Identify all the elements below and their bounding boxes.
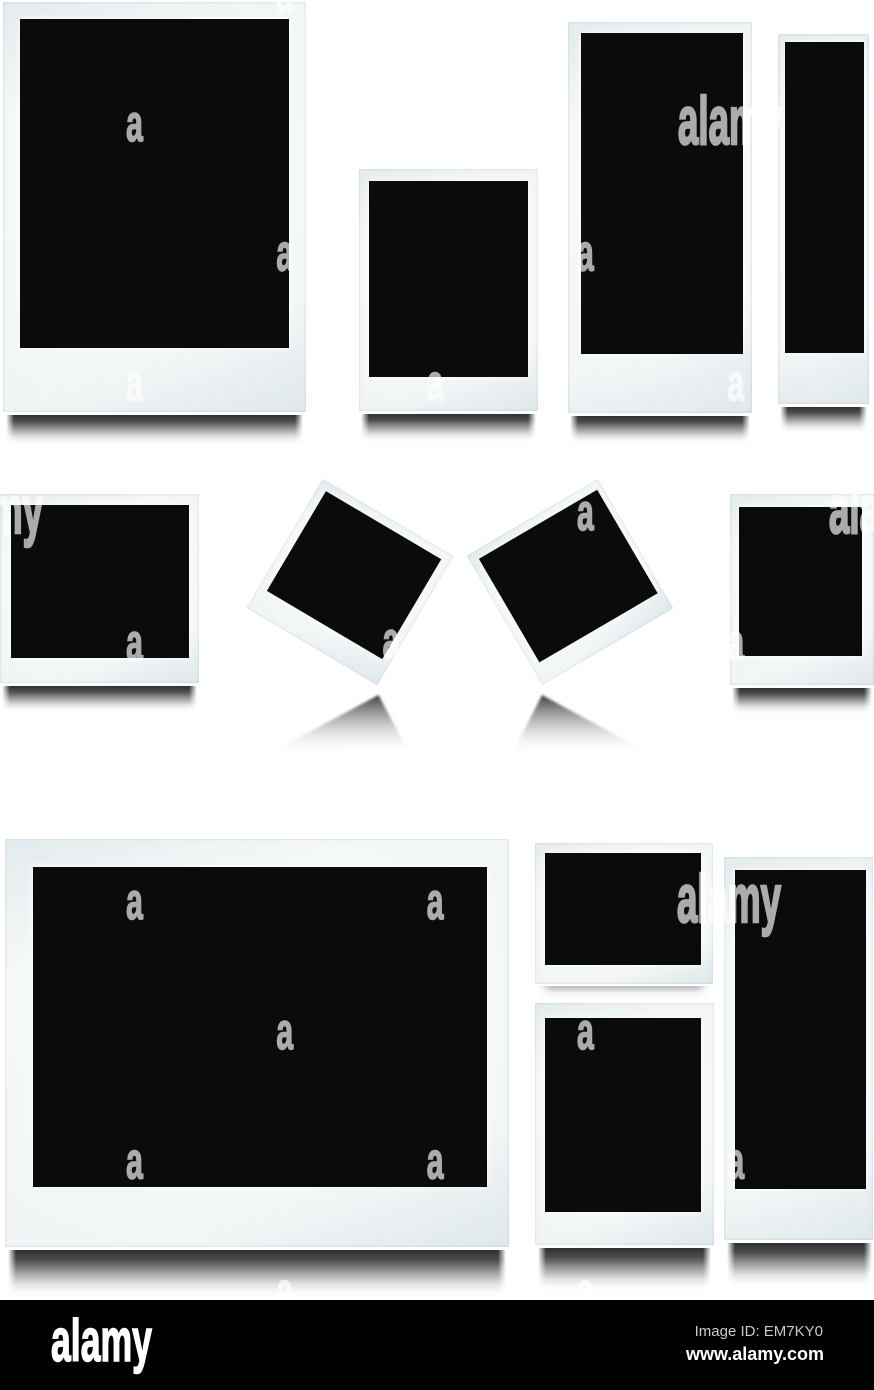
svg-text:alamy: alamy: [829, 472, 874, 548]
svg-text:a: a: [427, 615, 444, 672]
svg-text:a: a: [383, 613, 400, 670]
svg-text:a: a: [577, 1004, 594, 1061]
svg-text:a: a: [427, 1133, 444, 1190]
svg-text:a: a: [727, 355, 744, 412]
svg-text:alamy: alamy: [51, 1317, 152, 1374]
svg-text:a: a: [126, 96, 143, 153]
svg-text:a: a: [577, 744, 594, 801]
svg-text:a: a: [126, 615, 143, 672]
svg-text:a: a: [126, 355, 143, 412]
svg-text:a: a: [276, 1004, 293, 1061]
svg-text:a: a: [126, 1133, 143, 1190]
svg-text:a: a: [577, 485, 594, 542]
svg-text:alamy: alamy: [677, 861, 781, 937]
svg-text:a: a: [427, 355, 444, 412]
svg-text:a: a: [276, 485, 293, 542]
svg-text:a: a: [276, 744, 293, 801]
svg-text:a: a: [727, 615, 744, 672]
svg-text:alamy: alamy: [678, 83, 782, 159]
svg-text:a: a: [276, 0, 293, 24]
svg-text:a: a: [126, 874, 143, 931]
svg-text:a: a: [427, 96, 444, 153]
svg-text:a: a: [727, 1133, 744, 1190]
svg-text:a: a: [276, 225, 293, 282]
svg-text:a: a: [427, 874, 444, 931]
svg-text:alamy: alamy: [0, 472, 43, 548]
svg-text:a: a: [577, 225, 594, 282]
